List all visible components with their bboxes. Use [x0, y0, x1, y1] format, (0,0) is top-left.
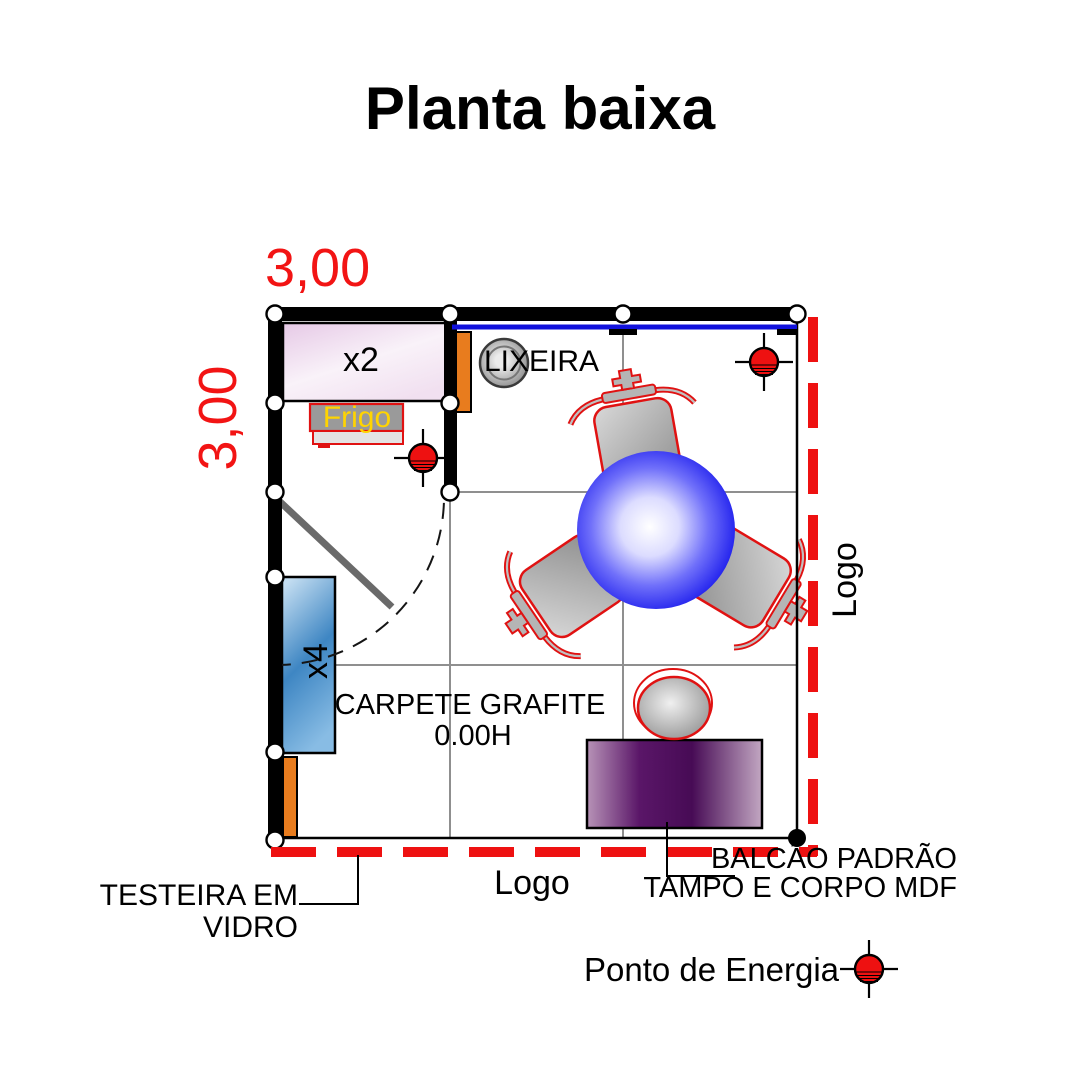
carpet-label-line2: 0.00H: [434, 720, 511, 752]
logo-right-label: Logo: [826, 542, 864, 618]
energy-legend-label: Ponto de Energia: [584, 951, 840, 988]
dimension-height-label: 3,00: [188, 365, 248, 470]
fridge-box: Frigo: [310, 401, 403, 448]
trash-bin-label: LIXEIRA: [484, 345, 599, 378]
testeira-label-line1: TESTEIRA EM: [100, 879, 298, 912]
testeira-leader-line: [299, 855, 358, 904]
energy-point-icon: [735, 333, 793, 391]
balcao-label-line1: BALCÃO PADRÃO: [711, 841, 957, 875]
divider-panel-bottom: [283, 757, 297, 837]
stool: [634, 669, 712, 739]
fridge-label: Frigo: [323, 401, 391, 434]
shelf-x2-label: x2: [343, 341, 379, 379]
counter: [587, 740, 762, 828]
dimension-width-label: 3,00: [265, 238, 370, 298]
round-table: [577, 451, 735, 609]
page-title: Planta baixa: [365, 75, 716, 142]
balcao-label-line2: TAMPO E CORPO MDF: [643, 872, 957, 904]
testeira-glass-line: [452, 327, 798, 335]
shelf-x2: x2: [283, 323, 450, 401]
floor-plan-canvas: Planta baixa 3,00 3,00 x2 Frigo LIXEIRA …: [0, 0, 1080, 1080]
carpet-label-line1: CARPETE GRAFITE: [335, 689, 606, 721]
testeira-label-line2: VIDRO: [203, 911, 298, 944]
energy-point-legend-icon: [840, 940, 898, 998]
floor-plan-page: Planta baixa 3,00 3,00 x2 Frigo LIXEIRA …: [0, 0, 1080, 1080]
logo-bottom-label: Logo: [494, 864, 570, 902]
